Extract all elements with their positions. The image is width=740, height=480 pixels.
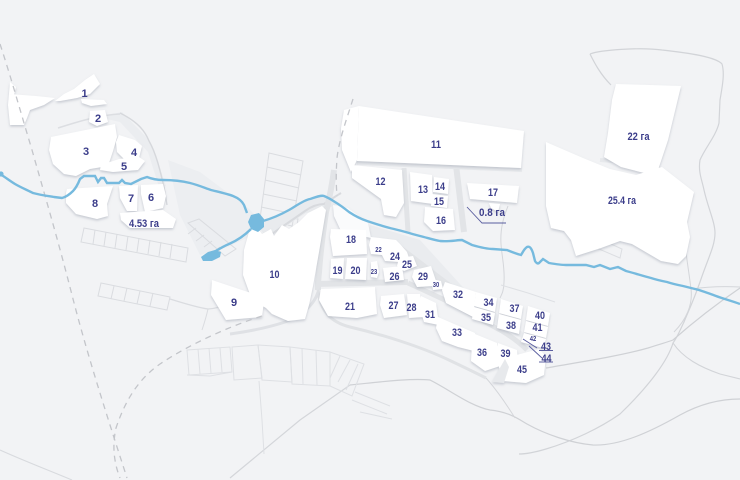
- svg-text:36: 36: [477, 347, 487, 359]
- svg-text:15: 15: [434, 196, 444, 208]
- svg-text:7: 7: [128, 193, 134, 205]
- svg-text:8: 8: [92, 198, 98, 210]
- svg-text:17: 17: [488, 187, 498, 199]
- svg-text:37: 37: [510, 303, 520, 315]
- svg-text:42: 42: [530, 336, 537, 343]
- svg-text:20: 20: [351, 265, 361, 277]
- svg-text:43: 43: [541, 341, 551, 353]
- svg-text:31: 31: [425, 309, 435, 321]
- svg-text:27: 27: [389, 300, 399, 312]
- svg-text:1: 1: [81, 88, 87, 100]
- svg-text:26: 26: [390, 271, 400, 283]
- svg-text:33: 33: [452, 327, 462, 339]
- svg-text:35: 35: [481, 312, 491, 324]
- svg-text:6: 6: [148, 192, 154, 204]
- svg-text:39: 39: [501, 348, 511, 360]
- svg-text:18: 18: [346, 234, 356, 246]
- svg-text:2: 2: [95, 113, 101, 125]
- svg-text:19: 19: [333, 265, 343, 277]
- svg-text:23: 23: [371, 269, 378, 276]
- svg-text:24: 24: [390, 251, 401, 263]
- svg-text:40: 40: [535, 310, 545, 322]
- svg-text:16: 16: [436, 215, 446, 227]
- svg-text:12: 12: [376, 176, 386, 188]
- svg-text:28: 28: [407, 302, 417, 314]
- svg-text:9: 9: [231, 297, 237, 309]
- svg-text:30: 30: [433, 282, 440, 289]
- svg-text:0.8 га: 0.8 га: [479, 207, 506, 219]
- svg-text:32: 32: [453, 289, 463, 301]
- svg-text:21: 21: [345, 301, 355, 313]
- svg-text:38: 38: [506, 320, 516, 332]
- svg-text:13: 13: [418, 184, 428, 196]
- svg-text:11: 11: [431, 139, 441, 151]
- svg-text:5: 5: [121, 161, 127, 173]
- svg-text:45: 45: [517, 364, 527, 376]
- svg-text:25: 25: [402, 259, 412, 271]
- svg-text:14: 14: [435, 181, 446, 193]
- svg-text:29: 29: [418, 271, 428, 283]
- svg-text:3: 3: [83, 146, 89, 158]
- svg-text:22 га: 22 га: [628, 131, 651, 143]
- svg-text:41: 41: [533, 322, 543, 334]
- svg-text:22: 22: [375, 247, 382, 254]
- svg-text:25.4 га: 25.4 га: [608, 195, 637, 207]
- svg-text:4: 4: [131, 147, 138, 159]
- svg-text:4.53 га: 4.53 га: [129, 218, 160, 230]
- svg-text:34: 34: [484, 297, 495, 309]
- svg-text:10: 10: [270, 269, 280, 281]
- svg-text:44: 44: [542, 353, 553, 365]
